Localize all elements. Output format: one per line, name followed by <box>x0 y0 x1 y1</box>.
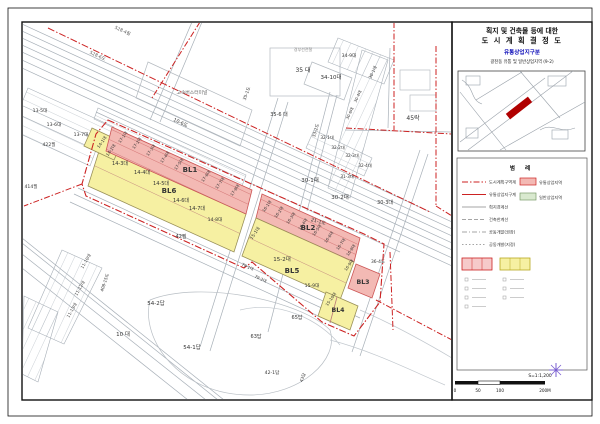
parcel-label: 14-8대 <box>208 216 223 223</box>
parcel-label: 34-9대 <box>342 52 357 59</box>
legend-item-label: 건축한계선 <box>489 216 508 223</box>
block-label: BL3 <box>357 279 370 286</box>
block-label: BL6 <box>162 187 177 195</box>
parcel-label: 414필 <box>25 183 38 190</box>
map-canvas: BL1BL2BL3BL4BL5BL614-1대14-2대14-3대14-4대14… <box>0 0 600 424</box>
parcel-label: 13-6대 <box>47 121 62 128</box>
legend-item-label: 공동개발(권장) <box>489 229 516 236</box>
parcel-label: 36-4도 <box>371 259 385 265</box>
parcel-label: 65답 <box>292 314 303 321</box>
legend-item-label: 유통상업지역 <box>539 179 562 186</box>
block-label: BL1 <box>183 166 198 174</box>
parcel-label: 63답 <box>251 333 262 340</box>
scale-tick-label: 0 <box>454 388 457 393</box>
parcel-label: 13-7대 <box>74 131 89 138</box>
parcel-label: 32-1대 <box>320 134 334 141</box>
parcel-label: 54-1답 <box>183 344 201 351</box>
parcel-label: 고속버스터미널 <box>177 89 208 96</box>
parcel-label: 30-1대 <box>301 176 319 184</box>
parcel-label: 13-5대 <box>33 107 48 114</box>
parcel-label: 42필 <box>176 233 187 240</box>
parcel-label: 경부선전철 <box>294 46 313 52</box>
parcel-label: 422필 <box>43 141 56 148</box>
parcel-label: 15-2대 <box>273 255 291 263</box>
legend-item-label: 유통상업지구계 <box>489 191 516 198</box>
legend-title: 범 례 <box>510 164 534 172</box>
title-line3: 유통상업지구분 <box>504 48 540 56</box>
block-label: BL4 <box>332 307 346 314</box>
legend-item-label: 도시계획구역계 <box>489 179 516 186</box>
title-line4: 광천동 유통 및 일반상업지역 (9-2) <box>490 58 554 65</box>
parcel-label: 54-2답 <box>147 300 165 307</box>
parcel-label: 30-3대 <box>377 199 393 206</box>
parcel-label: 14-4대 <box>134 169 150 176</box>
legend-item-label: 일반상업지역 <box>539 194 562 201</box>
legend-item-label: 공동개발(지정) <box>489 241 516 248</box>
title-line1: 획지 및 건축물 등에 대한 <box>486 26 559 35</box>
parcel-label: 35-6 대 <box>270 111 288 118</box>
block-label: BL5 <box>285 267 300 275</box>
key-map <box>458 62 585 151</box>
parcel-label: 42-1답 <box>265 369 280 376</box>
scale-ratio: S=1:1,200 <box>528 373 552 379</box>
parcel-label: 35 대 <box>295 66 310 74</box>
legend-item-label: 획지경계선 <box>489 204 508 211</box>
north-arrow-icon <box>549 363 563 377</box>
title-line2: 도 시 계 획 결 정 도 <box>482 36 563 45</box>
scale-tick-label: 200M <box>539 388 551 393</box>
parcel-label: 15-9대 <box>305 282 320 289</box>
parcel-label: 14-7대 <box>189 205 205 212</box>
parcel-label: 32-2대 <box>331 144 345 151</box>
legend-swatch <box>520 178 536 185</box>
parcel-label: 30-2대 <box>331 193 349 201</box>
drawing-sheet: BL1BL2BL3BL4BL5BL614-1대14-2대14-3대14-4대14… <box>0 0 600 424</box>
legend-swatch <box>520 193 536 200</box>
parcel-label: 10 대 <box>116 330 130 338</box>
parcel-label: 34-10대 <box>320 73 341 81</box>
parcel-label: 32-3대 <box>345 152 359 159</box>
parcel-label: 31-3대 <box>340 173 354 180</box>
parcel-label: 32-4대 <box>358 162 372 169</box>
parcel-label: 14-6대 <box>173 197 189 204</box>
parcel-label: 14-5대 <box>153 180 169 187</box>
scale-tick-label: 100 <box>496 388 504 393</box>
parcel-label: 14-3대 <box>112 160 128 167</box>
parcel-label: 45락 <box>406 114 420 122</box>
scale-tick-label: 50 <box>475 388 481 393</box>
